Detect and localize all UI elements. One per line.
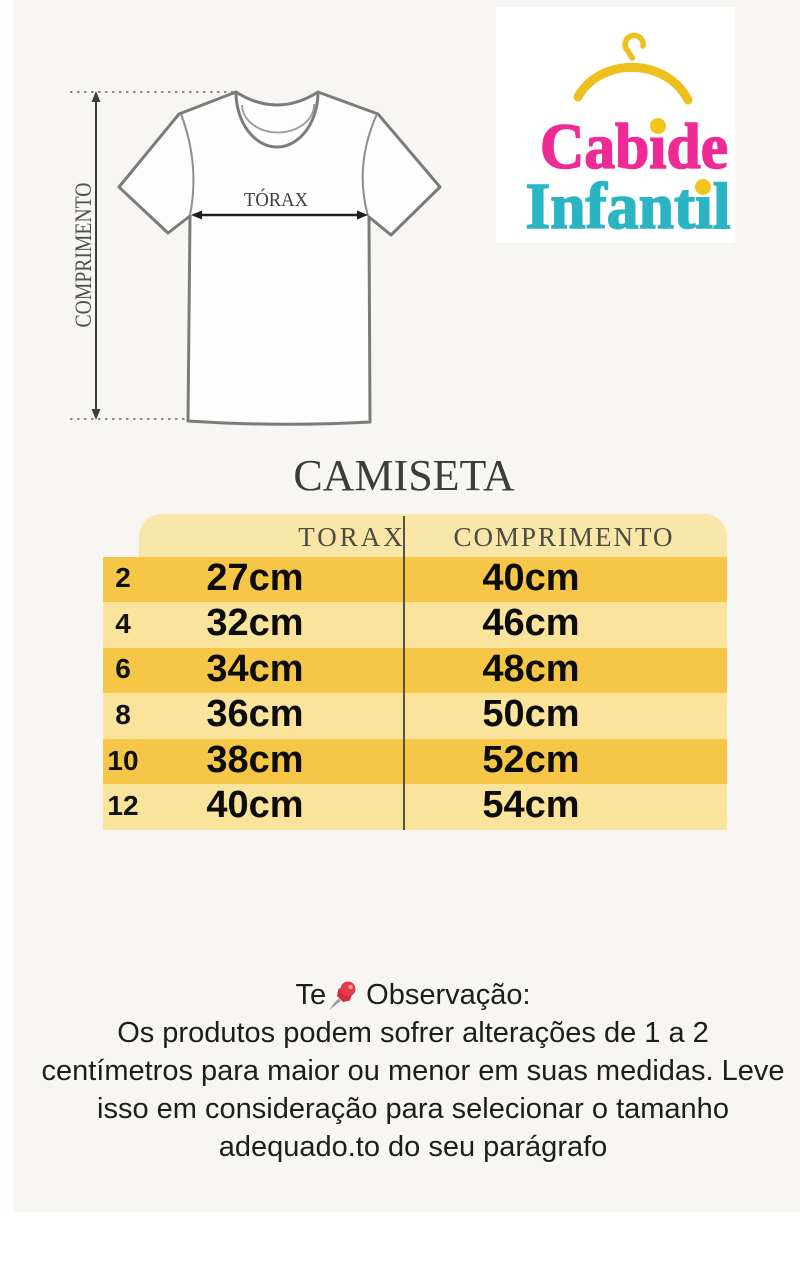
- svg-text:TÓRAX: TÓRAX: [244, 187, 309, 211]
- svg-text:COMPRIMENTO: COMPRIMENTO: [71, 183, 97, 328]
